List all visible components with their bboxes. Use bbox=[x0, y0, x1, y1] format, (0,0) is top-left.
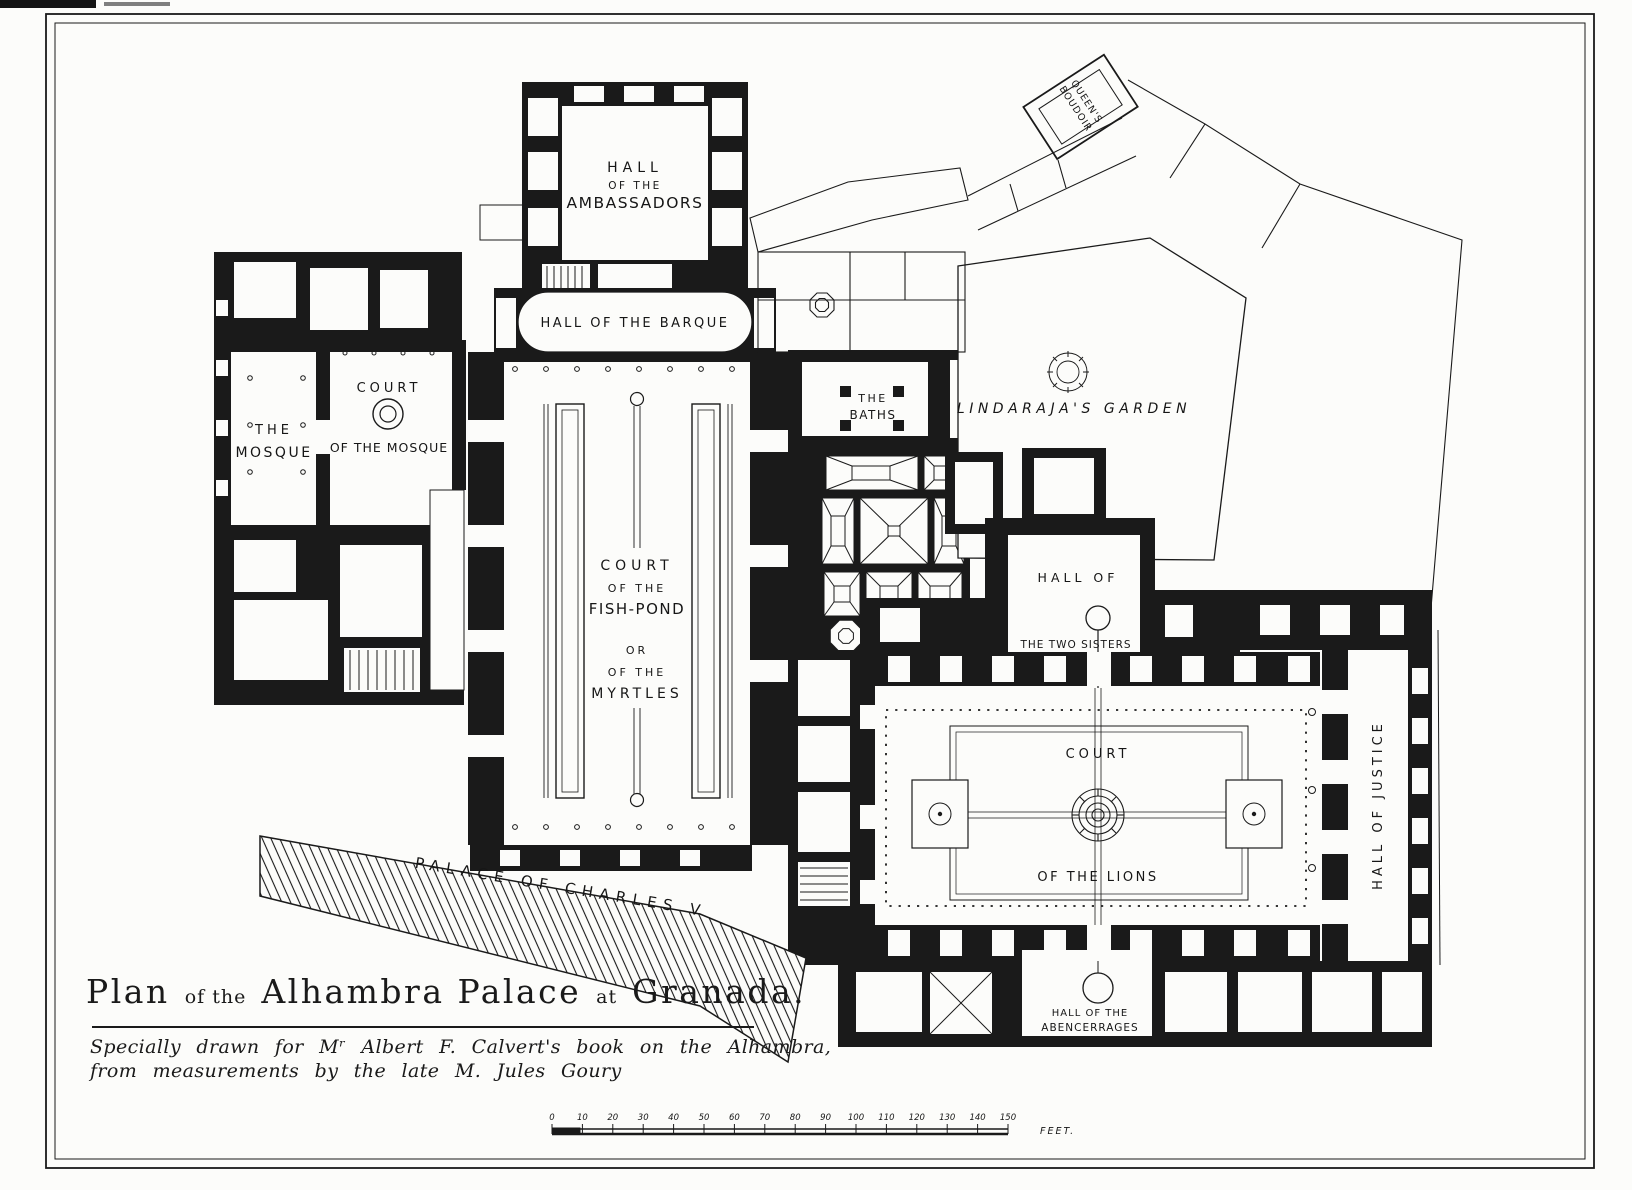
hall-of-the-barque: HALL OF THE BARQUE bbox=[494, 288, 776, 362]
scale-bar: 0 10 20 30 40 50 60 70 80 90 100 110 120… bbox=[549, 1113, 1075, 1137]
title-underline bbox=[92, 1026, 754, 1028]
fishpond-label: FISH-POND bbox=[589, 600, 685, 618]
scale-tick: 30 bbox=[638, 1113, 649, 1123]
title-word: Plan bbox=[86, 972, 170, 1011]
court-of-the-fishpond: COURT OF THE FISH-POND OR OF THE MYRTLES bbox=[468, 352, 788, 845]
barque-label: HALL OF THE BARQUE bbox=[541, 316, 730, 331]
fishpond-label: OR bbox=[626, 644, 648, 657]
title-word: Granada. bbox=[632, 972, 806, 1011]
plan-title: Plan of the Alhambra Palace at Granada. bbox=[86, 972, 806, 1011]
ambassadors-label: OF THE bbox=[608, 180, 662, 192]
lions-fountain bbox=[1072, 789, 1124, 841]
scale-tick: 20 bbox=[607, 1113, 618, 1123]
hall-of-ambassadors-tower: HALL OF THE AMBASSADORS bbox=[522, 82, 748, 302]
hall-of-abencerrages: HALL OF THE ABENCERRAGES bbox=[1022, 950, 1152, 1036]
court-of-the-mosque: COURT OF THE MOSQUE bbox=[330, 351, 448, 455]
fishpond-label: MYRTLES bbox=[591, 686, 682, 702]
mosque-label: THE bbox=[254, 423, 293, 438]
hall-of-justice: HALL OF JUSTICE bbox=[1309, 630, 1441, 965]
title-word: of the bbox=[185, 986, 247, 1008]
title-word: Alhambra Palace bbox=[261, 972, 581, 1011]
baths-label: BATHS bbox=[850, 408, 897, 422]
lions-pavilions bbox=[912, 780, 1282, 848]
ambassadors-label: HALL bbox=[607, 160, 663, 176]
justice-label: HALL OF JUSTICE bbox=[1371, 720, 1386, 890]
scale-tick: 40 bbox=[668, 1113, 679, 1123]
south-range: HALL OF THE ABENCERRAGES bbox=[838, 950, 1432, 1047]
scale-tick: 10 bbox=[577, 1113, 588, 1123]
fishpond-label: OF THE bbox=[608, 582, 666, 595]
scale-tick: 110 bbox=[878, 1113, 894, 1123]
court-mosque-label: OF THE MOSQUE bbox=[330, 440, 448, 455]
lions-label: OF THE LIONS bbox=[1037, 870, 1158, 885]
scale-tick: 120 bbox=[909, 1113, 925, 1123]
credit-line: Specially drawn for Mʳ Albert F. Calvert… bbox=[90, 1035, 831, 1059]
fishpond-label: COURT bbox=[600, 558, 673, 574]
scale-tick: 100 bbox=[848, 1113, 864, 1123]
scale-tick: 90 bbox=[820, 1113, 831, 1123]
title-word: at bbox=[596, 986, 617, 1008]
abencerrages-label: ABENCERRAGES bbox=[1041, 1022, 1138, 1034]
scale-tick: 70 bbox=[759, 1113, 770, 1123]
scale-tick: 50 bbox=[699, 1113, 710, 1123]
scale-tick: 60 bbox=[729, 1113, 740, 1123]
credit-note: Specially drawn for Mʳ Albert F. Calvert… bbox=[90, 1035, 831, 1084]
two-sisters-label: HALL OF bbox=[1038, 570, 1119, 585]
scale-unit-label: FEET. bbox=[1040, 1126, 1075, 1137]
scale-tick: 0 bbox=[549, 1113, 554, 1123]
scanned-plan-page: THE MOSQUE COURT OF THE MOSQUE bbox=[0, 0, 1632, 1190]
credit-line: from measurements by the late M. Jules G… bbox=[90, 1059, 831, 1083]
scale-tick: 140 bbox=[969, 1113, 985, 1123]
scale-tick: 80 bbox=[790, 1113, 801, 1123]
two-sisters-label: THE TWO SISTERS bbox=[1019, 639, 1131, 651]
court-mosque-label: COURT bbox=[357, 381, 422, 396]
scale-tick: 130 bbox=[939, 1113, 955, 1123]
fishpond-label: OF THE bbox=[608, 666, 666, 679]
the-mosque-room: THE MOSQUE bbox=[235, 376, 312, 475]
alhambra-floor-plan: THE MOSQUE COURT OF THE MOSQUE bbox=[0, 0, 1632, 1190]
fishpond-south-wall bbox=[470, 845, 752, 871]
fishpond-labels: COURT OF THE FISH-POND OR OF THE MYRTLES bbox=[589, 548, 685, 708]
baths-label: THE bbox=[857, 392, 887, 405]
lions-label: COURT bbox=[1066, 747, 1131, 762]
queens-boudoir: QUEEN'S BOUDOIR bbox=[1023, 55, 1137, 159]
mosque-label: MOSQUE bbox=[235, 445, 312, 461]
ambassadors-label: AMBASSADORS bbox=[566, 194, 703, 212]
lindaraja-label: LINDARAJA'S GARDEN bbox=[957, 401, 1191, 417]
abencerrages-label: HALL OF THE bbox=[1052, 1008, 1128, 1019]
scale-tick: 150 bbox=[1000, 1113, 1016, 1123]
